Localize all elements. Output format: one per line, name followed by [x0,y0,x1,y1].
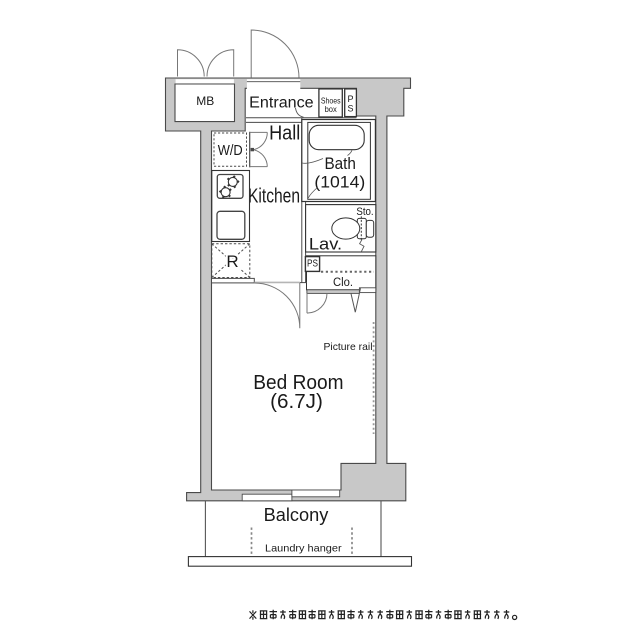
svg-text:W/D: W/D [218,143,243,159]
svg-text:Laundry hanger: Laundry hanger [265,542,342,554]
svg-text:PS: PS [307,259,318,270]
svg-text:MB: MB [196,94,214,108]
svg-text:Entrance: Entrance [249,95,314,112]
svg-text:Kitchen: Kitchen [248,186,300,208]
svg-text:(1014): (1014) [314,173,365,192]
svg-text:Hall: Hall [269,123,300,145]
svg-text:Sto.: Sto. [356,206,373,218]
svg-text:Clo.: Clo. [333,277,353,289]
svg-text:Bath: Bath [324,154,356,173]
svg-text:Picture rail: Picture rail [324,342,373,353]
svg-text:(6.7J): (6.7J) [270,391,323,413]
svg-text:P: P [347,94,353,104]
svg-text:S: S [347,104,353,114]
svg-text:Balcony: Balcony [264,505,329,525]
svg-text:R: R [226,252,238,271]
svg-text:box: box [325,105,337,114]
